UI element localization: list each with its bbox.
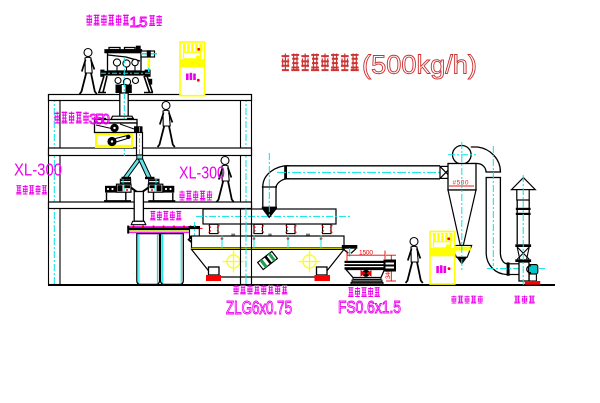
svg-text:(500kg/h): (500kg/h) [362, 50, 477, 80]
svg-text:1500: 1500 [359, 249, 373, 256]
svg-text:350: 350 [89, 111, 110, 128]
svg-text:FS0.6x1.5: FS0.6x1.5 [338, 297, 401, 317]
svg-text:XL-300: XL-300 [14, 160, 62, 180]
svg-text:XL-300: XL-300 [179, 163, 225, 183]
svg-text:#500: #500 [453, 180, 469, 187]
svg-text:ZLG6x0.75: ZLG6x0.75 [226, 297, 292, 318]
svg-text:1.5: 1.5 [130, 14, 148, 31]
